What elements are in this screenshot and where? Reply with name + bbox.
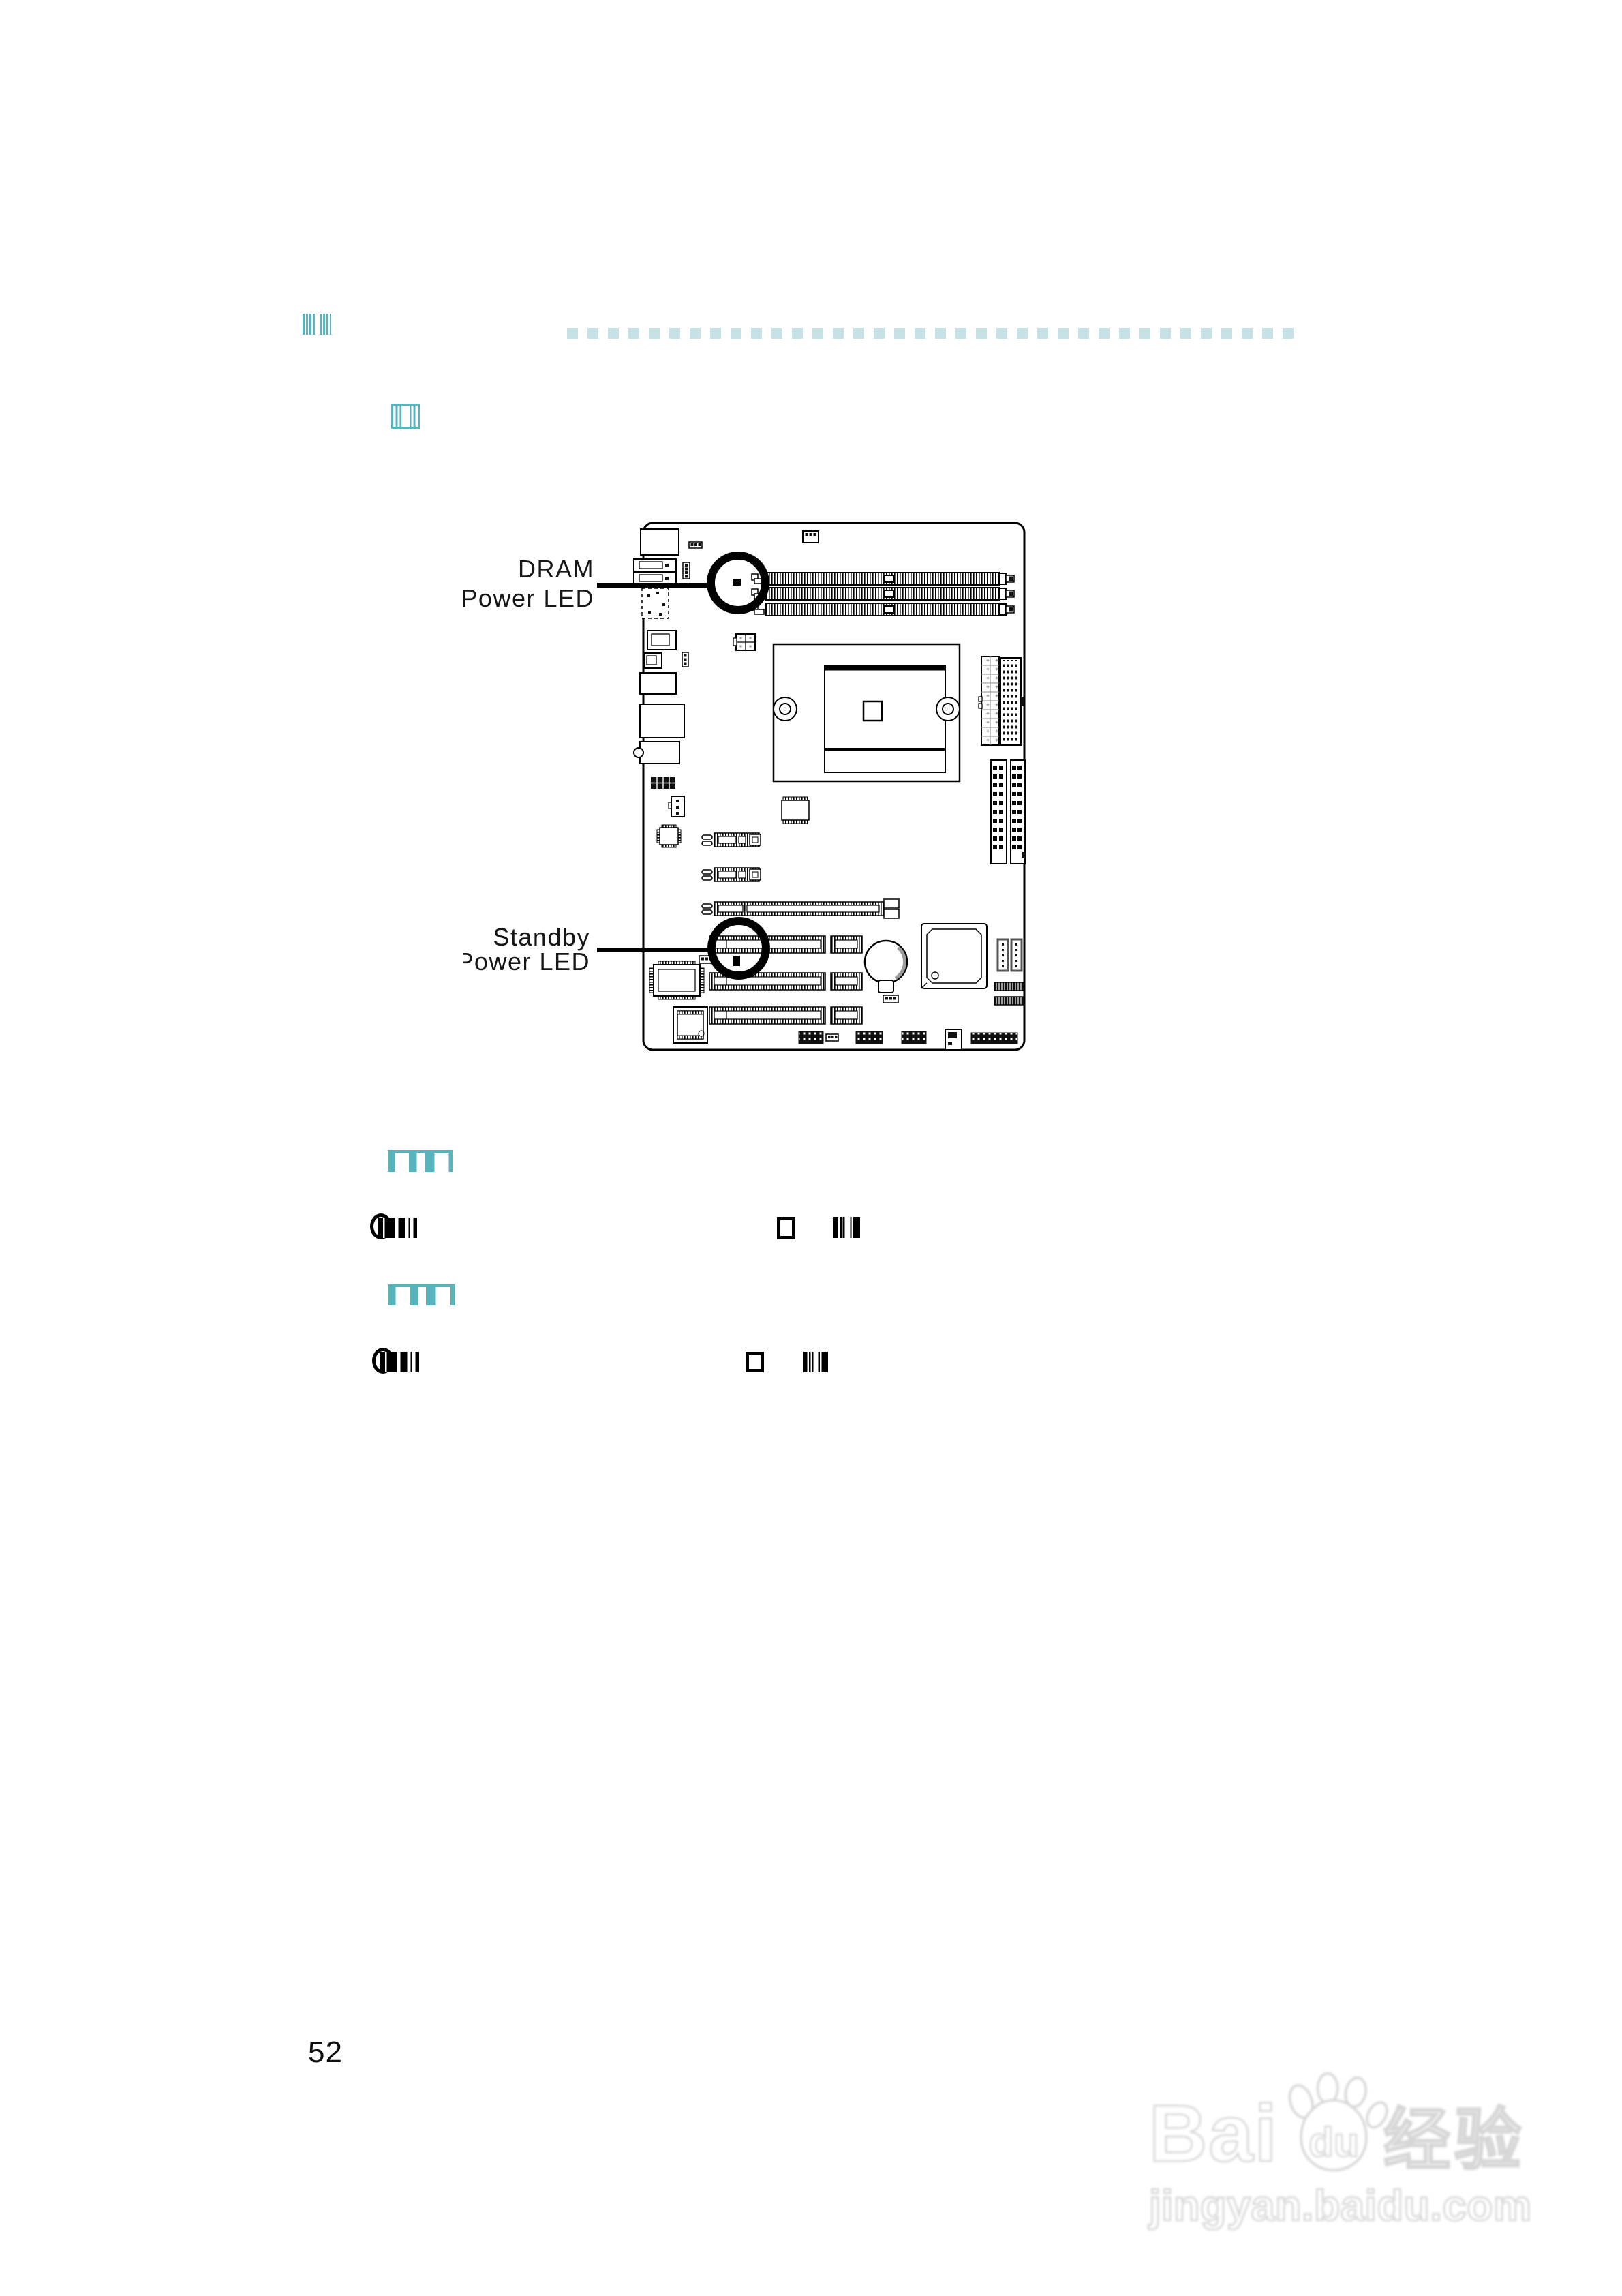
standby-label-line1: Standby: [493, 923, 590, 951]
standby-label-line2: Power LED: [463, 948, 590, 976]
page-number: 52: [308, 2036, 343, 2070]
dotted-divider: [567, 328, 1296, 339]
baidu-paw-icon: du: [1277, 2072, 1390, 2175]
rear-io-panel: [634, 529, 684, 764]
agp-slot: [702, 899, 899, 918]
atx12v-connector: [733, 634, 755, 650]
watermark-domain: jingyan.baidu.com: [1149, 2181, 1532, 2231]
watermark-brand: Bai du 经验: [1149, 2072, 1532, 2172]
chipset: [921, 924, 987, 988]
dimm-slots: [752, 573, 1014, 616]
section-heading-glyph: [391, 404, 420, 429]
bios-chip: [673, 1007, 707, 1043]
standby-power-led: [733, 956, 740, 966]
glyph-bars: [378, 1218, 417, 1238]
list-marker-glyph-2: [372, 1346, 420, 1374]
dram-power-led: [733, 579, 741, 586]
paragraph-heading-glyph-2: [388, 1284, 455, 1305]
missing-glyph-box-1: [777, 1217, 795, 1239]
dram-label-line1: DRAM: [518, 555, 594, 583]
watermark-cjk: 经验: [1383, 2108, 1525, 2172]
striped-glyph-box-2: [803, 1352, 828, 1372]
missing-glyph-box-2: [746, 1352, 764, 1372]
chapter-heading-glyph: [303, 314, 331, 335]
striped-glyph-box-1: [833, 1217, 860, 1238]
atx-power-connector: [979, 656, 1024, 745]
dram-label-line2: Power LED: [463, 584, 594, 612]
motherboard-diagram: DRAM Power LED Standby Power LED: [463, 511, 1050, 1084]
list-marker-glyph-1: [370, 1212, 418, 1239]
baidu-watermark: Bai du 经验 jingyan.baidu.com: [1149, 2072, 1532, 2231]
front-io-header: [651, 777, 675, 789]
watermark-du: du: [1309, 2119, 1359, 2165]
paragraph-heading-glyph-1: [388, 1150, 453, 1172]
cpu-socket: [774, 644, 960, 781]
pci-slots: [709, 936, 862, 1024]
watermark-bai: Bai: [1149, 2096, 1279, 2172]
glyph-bars: [380, 1352, 419, 1372]
